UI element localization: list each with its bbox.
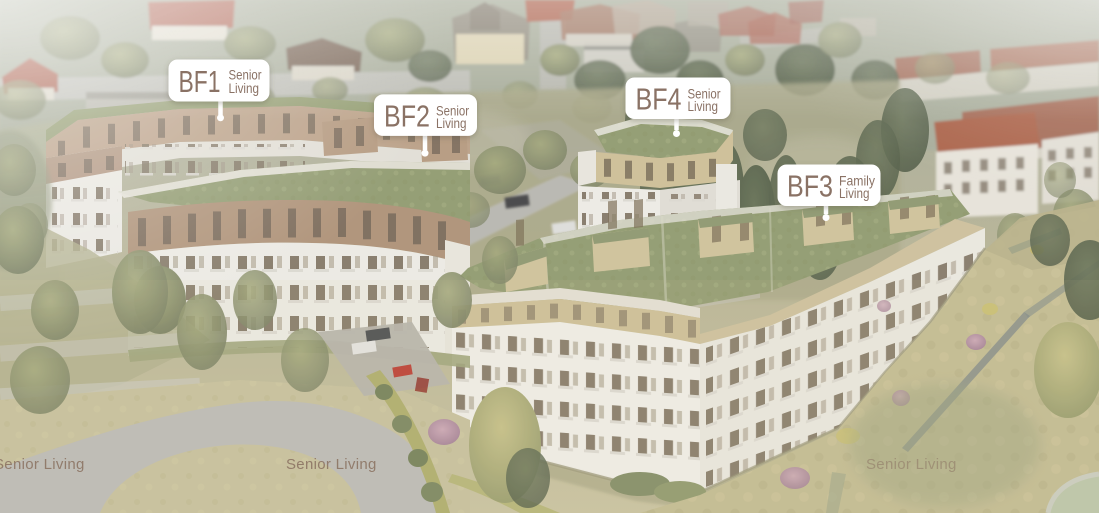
svg-text:BF2: BF2 [384,99,430,134]
svg-text:Living: Living [688,98,719,114]
svg-text:Senior Living: Senior Living [866,456,957,473]
svg-text:Senior Living: Senior Living [286,456,377,473]
svg-text:Living: Living [839,185,870,201]
svg-text:Living: Living [436,115,467,131]
svg-text:BF3: BF3 [787,169,833,204]
svg-text:Living: Living [229,80,260,96]
svg-text:BF4: BF4 [636,82,682,117]
svg-text:Senior Living: Senior Living [0,456,85,473]
svg-text:BF1: BF1 [179,64,221,99]
